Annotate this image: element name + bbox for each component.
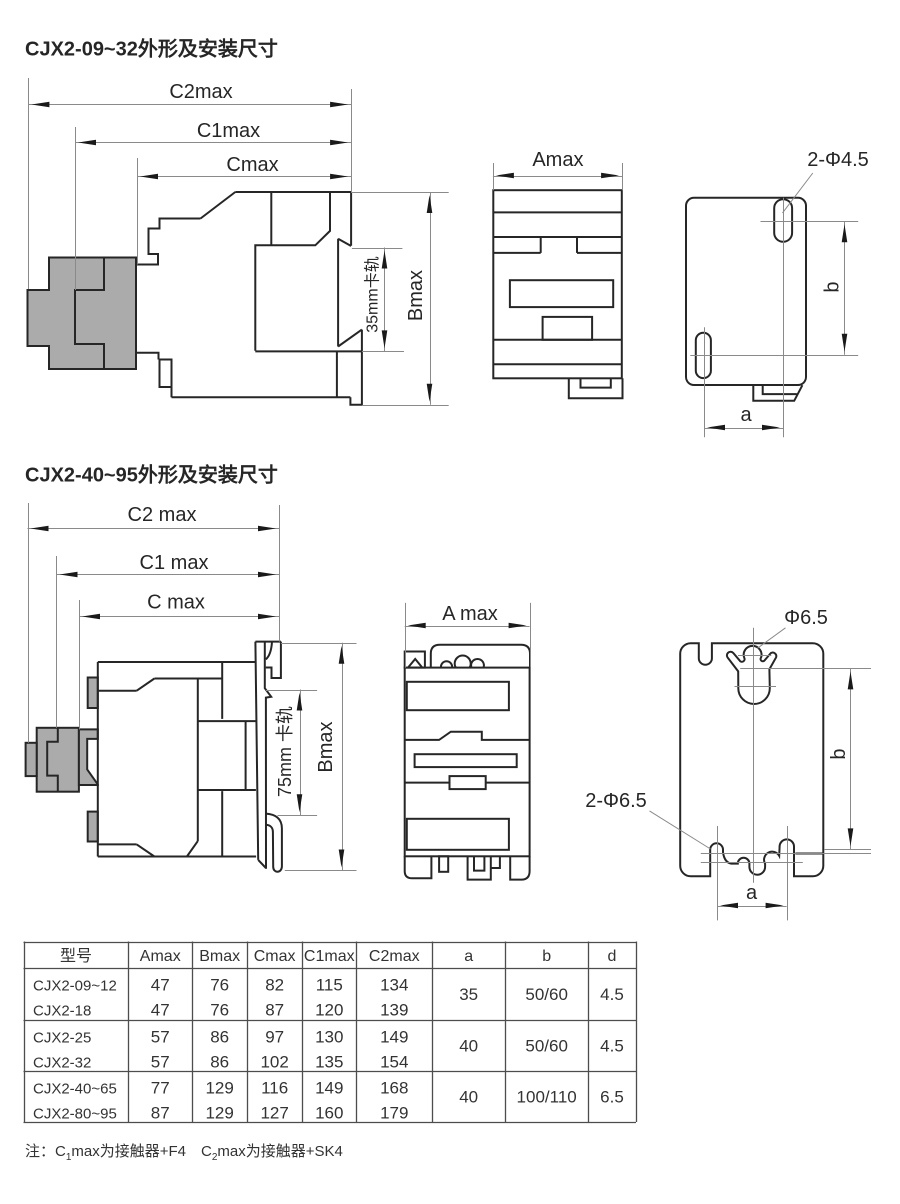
svg-text:型号: 型号: [60, 947, 92, 965]
svg-text:40: 40: [459, 1088, 478, 1107]
svg-text:50/60: 50/60: [525, 1037, 568, 1056]
svg-text:75mm 卡轨: 75mm 卡轨: [275, 706, 295, 797]
svg-text:CJX2-40~65: CJX2-40~65: [33, 1081, 117, 1098]
svg-text:130: 130: [315, 1028, 343, 1047]
svg-text:149: 149: [380, 1028, 408, 1047]
svg-text:Cmax: Cmax: [226, 154, 278, 176]
svg-text:149: 149: [315, 1079, 343, 1098]
svg-text:C1max: C1max: [197, 120, 260, 142]
svg-text:4.5: 4.5: [600, 985, 624, 1004]
svg-text:139: 139: [380, 1001, 408, 1020]
svg-text:179: 179: [380, 1104, 408, 1123]
svg-text:120: 120: [315, 1001, 343, 1020]
svg-text:168: 168: [380, 1079, 408, 1098]
svg-text:Cmax: Cmax: [254, 948, 296, 965]
svg-text:CJX2-09~12: CJX2-09~12: [33, 978, 117, 995]
svg-text:a: a: [740, 404, 752, 426]
svg-text:160: 160: [315, 1104, 343, 1123]
svg-text:50/60: 50/60: [525, 985, 568, 1004]
svg-text:Φ6.5: Φ6.5: [784, 607, 828, 629]
svg-text:C1 max: C1 max: [140, 552, 209, 574]
svg-text:Bmax: Bmax: [315, 721, 337, 772]
svg-text:86: 86: [210, 1028, 229, 1047]
svg-text:4.5: 4.5: [600, 1037, 624, 1056]
svg-text:35: 35: [459, 985, 478, 1004]
svg-text:A max: A max: [442, 603, 498, 625]
svg-text:C2max: C2max: [169, 81, 232, 103]
svg-text:b: b: [542, 948, 551, 965]
svg-text:Bmax: Bmax: [405, 270, 427, 321]
svg-text:CJX2-32: CJX2-32: [33, 1055, 91, 1072]
svg-text:b: b: [822, 281, 844, 292]
svg-text:d: d: [608, 948, 617, 965]
svg-text:CJX2-18: CJX2-18: [33, 1003, 91, 1020]
svg-text:82: 82: [265, 976, 284, 995]
svg-text:76: 76: [210, 976, 229, 995]
svg-text:CJX2-25: CJX2-25: [33, 1030, 91, 1047]
svg-text:97: 97: [265, 1028, 284, 1047]
svg-text:CJX2-40~95外形及安装尺寸: CJX2-40~95外形及安装尺寸: [25, 463, 278, 487]
svg-text:154: 154: [380, 1053, 408, 1072]
svg-text:b: b: [828, 748, 850, 759]
svg-text:a: a: [464, 948, 473, 965]
svg-text:116: 116: [261, 1079, 288, 1098]
svg-text:87: 87: [265, 1001, 284, 1020]
svg-text:115: 115: [316, 976, 343, 995]
svg-text:134: 134: [380, 976, 408, 995]
svg-text:C2max: C2max: [369, 948, 420, 965]
svg-text:86: 86: [210, 1053, 229, 1072]
svg-text:35mm卡轨: 35mm卡轨: [364, 256, 382, 332]
svg-text:77: 77: [151, 1079, 170, 1098]
svg-text:Amax: Amax: [140, 948, 181, 965]
svg-text:47: 47: [151, 1001, 170, 1020]
svg-text:C1max: C1max: [304, 948, 355, 965]
svg-text:C max: C max: [147, 592, 205, 614]
svg-text:CJX2-09~32外形及安装尺寸: CJX2-09~32外形及安装尺寸: [25, 37, 278, 61]
svg-text:Bmax: Bmax: [199, 948, 240, 965]
svg-text:2-Φ4.5: 2-Φ4.5: [807, 149, 869, 171]
svg-text:57: 57: [151, 1053, 170, 1072]
svg-text:127: 127: [260, 1104, 288, 1123]
svg-text:注：C1max为接触器+F4 C2max为接触器+SK4: 注：C1max为接触器+F4 C2max为接触器+SK4: [25, 1143, 343, 1163]
svg-text:47: 47: [151, 976, 170, 995]
svg-text:135: 135: [315, 1053, 343, 1072]
svg-text:100/110: 100/110: [517, 1088, 577, 1107]
svg-text:129: 129: [205, 1104, 233, 1123]
svg-text:102: 102: [260, 1053, 288, 1072]
svg-text:2-Φ6.5: 2-Φ6.5: [585, 790, 647, 812]
svg-text:87: 87: [151, 1104, 170, 1123]
svg-text:40: 40: [459, 1037, 478, 1056]
svg-text:CJX2-80~95: CJX2-80~95: [33, 1106, 117, 1123]
svg-text:6.5: 6.5: [600, 1088, 624, 1107]
svg-text:a: a: [746, 882, 758, 904]
svg-text:76: 76: [210, 1001, 229, 1020]
svg-text:C2 max: C2 max: [128, 504, 197, 526]
svg-text:57: 57: [151, 1028, 170, 1047]
svg-text:Amax: Amax: [532, 149, 583, 171]
svg-text:129: 129: [205, 1079, 233, 1098]
